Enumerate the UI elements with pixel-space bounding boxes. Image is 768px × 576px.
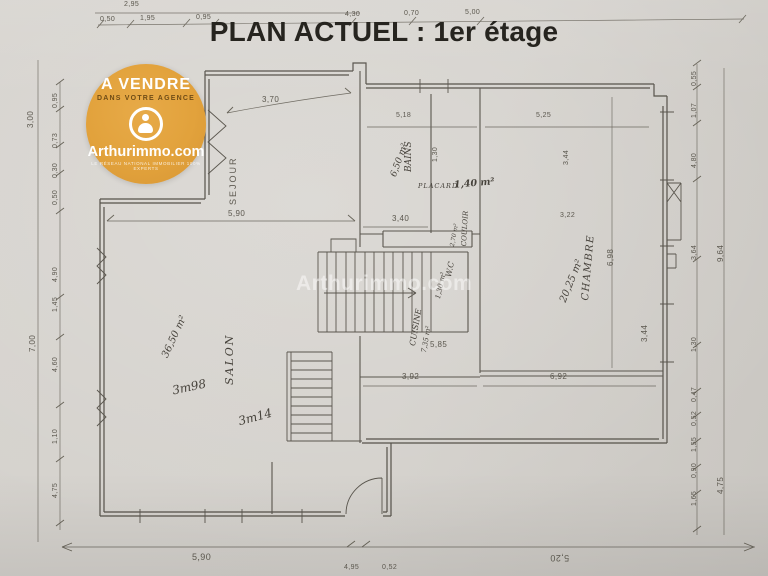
dim-label: 5,90 bbox=[192, 552, 211, 562]
badge-a-vendre: A VENDRE bbox=[101, 77, 191, 93]
dim-label: 6,92 bbox=[550, 372, 567, 381]
dim-label: 0,30 bbox=[52, 163, 59, 178]
dim-label: 3,64 bbox=[691, 245, 698, 260]
dim-label: 0,52 bbox=[382, 564, 397, 571]
dim-label: 4,75 bbox=[716, 477, 725, 494]
dim-label: 5,20 bbox=[550, 553, 569, 563]
dim-label: 0,73 bbox=[52, 133, 59, 148]
dim-label: 5,85 bbox=[430, 340, 447, 349]
dim-label: 0,47 bbox=[691, 387, 698, 402]
dim-label: 5,25 bbox=[536, 112, 551, 119]
dim-label: 7,00 bbox=[28, 335, 37, 352]
dim-label: 3,44 bbox=[640, 325, 649, 342]
dim-label: 0,95 bbox=[52, 93, 59, 108]
dim-label: 3,22 bbox=[560, 212, 575, 219]
dim-label: 3,92 bbox=[402, 372, 419, 381]
dim-label: 4,60 bbox=[52, 357, 59, 372]
dim-label: 5,18 bbox=[396, 112, 411, 119]
room-label-placard: PLACARD bbox=[418, 182, 458, 190]
arthurimmo-logo-icon bbox=[129, 107, 163, 141]
dim-label: 2,95 bbox=[124, 1, 139, 8]
staircase-secondary bbox=[287, 352, 362, 441]
badge-brand: Arthurimmo.com bbox=[88, 145, 205, 160]
dim-label: 4,75 bbox=[52, 483, 59, 498]
dim-label: 1,30 bbox=[432, 147, 439, 162]
agency-badge: A VENDRE DANS VOTRE AGENCE Arthurimmo.co… bbox=[86, 64, 206, 184]
room-label-sejour: SEJOUR bbox=[228, 156, 238, 205]
badge-dans-votre-agence: DANS VOTRE AGENCE bbox=[97, 95, 195, 102]
dim-label: 9,64 bbox=[716, 245, 725, 262]
dim-label: 0,52 bbox=[691, 411, 698, 426]
dim-label: 0,50 bbox=[52, 190, 59, 205]
dim-label: 0,90 bbox=[691, 463, 698, 478]
dim-label: 1,10 bbox=[52, 429, 59, 444]
dim-label: 3,40 bbox=[392, 214, 409, 223]
dim-label: 1,45 bbox=[52, 297, 59, 312]
dim-label: 0,55 bbox=[691, 71, 698, 86]
dim-label: 3,70 bbox=[262, 95, 279, 104]
dim-label: 1,65 bbox=[691, 491, 698, 506]
dim-label: 4,80 bbox=[691, 153, 698, 168]
badge-subtext: LE RÉSEAU NATIONAL IMMOBILIER 100% EXPER… bbox=[86, 162, 206, 171]
dim-label: 3,44 bbox=[563, 150, 570, 165]
dim-label: 5,90 bbox=[228, 209, 245, 218]
room-label-salon: SALON bbox=[223, 334, 236, 385]
dim-label: 6,98 bbox=[606, 249, 615, 266]
dim-label: 4,90 bbox=[52, 267, 59, 282]
dim-label: 1,07 bbox=[691, 103, 698, 118]
dim-label: 1,55 bbox=[691, 437, 698, 452]
dim-label: 4,95 bbox=[344, 564, 359, 571]
watermark: Arthurimmo.com bbox=[296, 272, 472, 296]
dim-label: 5,00 bbox=[465, 9, 480, 16]
dim-label: 3,00 bbox=[26, 111, 35, 128]
dim-label: 1,30 bbox=[691, 337, 698, 352]
plan-title: PLAN ACTUEL : 1er étage bbox=[0, 16, 768, 48]
floor-plan-photo: PLAN ACTUEL : 1er étage 2,95 0,50 1,95 0… bbox=[0, 0, 768, 576]
